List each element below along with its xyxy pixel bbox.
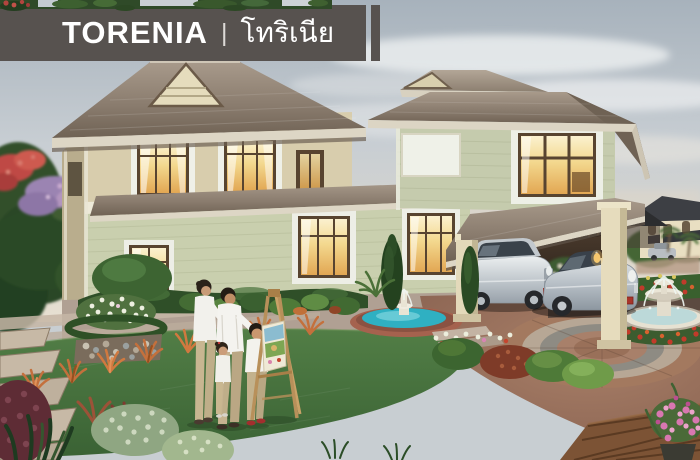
- banner-accent-bar: [371, 5, 380, 61]
- wall-panel: [402, 134, 460, 176]
- house-scene: [0, 0, 700, 460]
- canvas-painting: [262, 321, 286, 372]
- trimmed-shrub-mound: [92, 254, 172, 302]
- window-2f-big: [511, 126, 603, 204]
- side-window: [68, 162, 82, 196]
- banner-separator: |: [221, 19, 228, 48]
- grass-tufts: [322, 440, 410, 460]
- wall-lamp: [591, 250, 603, 266]
- corner-trim: [84, 128, 88, 314]
- project-name-en: TORENIA: [62, 15, 208, 51]
- downspout: [64, 150, 67, 310]
- treetop-foliage: [0, 0, 332, 12]
- window-1f-2: [292, 210, 356, 284]
- corner-trim-right: [396, 122, 400, 210]
- brochure-image: TORENIA | โทริเนีย: [0, 0, 700, 460]
- project-name-th: โทริเนีย: [240, 11, 334, 55]
- project-name-banner: TORENIA | โทริเนีย: [0, 5, 366, 61]
